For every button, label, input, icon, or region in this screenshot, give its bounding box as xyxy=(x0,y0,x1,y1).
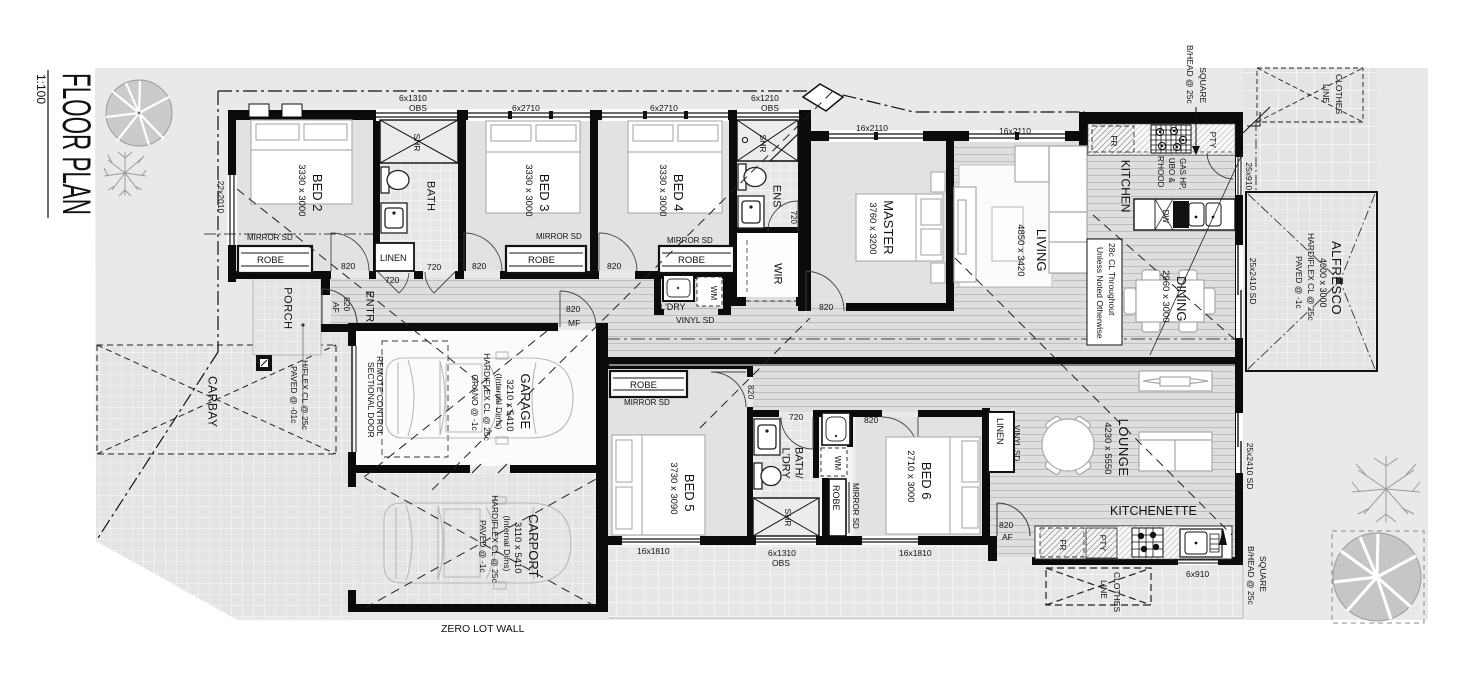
svg-text:BED 5: BED 5 xyxy=(682,474,697,512)
svg-text:820: 820 xyxy=(342,297,352,311)
svg-text:B/HEAD @ 25c: B/HEAD @ 25c xyxy=(1185,45,1195,104)
svg-text:25x2410 SD: 25x2410 SD xyxy=(1248,258,1258,305)
svg-text:25x910: 25x910 xyxy=(1244,162,1254,190)
svg-text:6x1210: 6x1210 xyxy=(751,93,779,103)
svg-text:FR: FR xyxy=(1109,135,1119,146)
svg-text:BATH/: BATH/ xyxy=(792,447,804,480)
svg-text:MASTER: MASTER xyxy=(881,200,896,254)
svg-text:820: 820 xyxy=(341,261,355,271)
svg-text:ZERO LOT WALL: ZERO LOT WALL xyxy=(441,623,525,635)
svg-text:LINEN: LINEN xyxy=(380,253,407,263)
svg-text:28c CL Throughout: 28c CL Throughout xyxy=(1107,243,1117,316)
svg-text:ROBE: ROBE xyxy=(678,255,705,266)
svg-text:720: 720 xyxy=(789,211,798,225)
svg-text:(Internal Dims): (Internal Dims) xyxy=(494,374,504,430)
svg-text:SQUARE: SQUARE xyxy=(1258,556,1268,592)
svg-text:MIRROR SD: MIRROR SD xyxy=(536,232,582,241)
svg-text:(Internal Dims): (Internal Dims) xyxy=(502,516,512,572)
svg-text:KITCHENETTE: KITCHENETTE xyxy=(1110,504,1197,518)
svg-text:FLOOR PLAN: FLOOR PLAN xyxy=(54,73,98,215)
svg-text:SHR: SHR xyxy=(758,135,768,153)
svg-text:BED 2: BED 2 xyxy=(310,174,325,212)
svg-text:Unless Noted Otherwise: Unless Noted Otherwise xyxy=(1095,247,1105,339)
svg-text:3330 x 3000: 3330 x 3000 xyxy=(523,164,534,216)
svg-text:3330 x 3000: 3330 x 3000 xyxy=(296,164,307,216)
svg-text:BED 6: BED 6 xyxy=(919,462,934,500)
svg-text:AF: AF xyxy=(331,302,341,313)
svg-text:LIVING: LIVING xyxy=(1034,229,1049,272)
svg-text:FR: FR xyxy=(1058,539,1068,550)
svg-text:3210 x 5410: 3210 x 5410 xyxy=(504,379,515,431)
svg-text:BATH: BATH xyxy=(424,181,436,212)
svg-text:720: 720 xyxy=(789,412,803,422)
svg-text:SECTIONAL DOOR: SECTIONAL DOOR xyxy=(366,362,376,438)
svg-text:16x2110: 16x2110 xyxy=(856,123,888,133)
svg-text:16x2110: 16x2110 xyxy=(999,126,1031,136)
svg-text:KITCHEN: KITCHEN xyxy=(1119,160,1133,213)
svg-text:PTY: PTY xyxy=(1208,132,1218,149)
svg-text:LINE: LINE xyxy=(1099,580,1109,599)
svg-text:AF: AF xyxy=(1002,532,1013,542)
svg-text:820: 820 xyxy=(819,302,833,312)
svg-text:720: 720 xyxy=(427,262,441,272)
svg-text:WM: WM xyxy=(833,456,842,471)
svg-text:PAVED @ -01c: PAVED @ -01c xyxy=(289,366,299,424)
svg-text:GARAGE: GARAGE xyxy=(518,374,533,430)
svg-text:720: 720 xyxy=(385,275,399,285)
svg-text:3730 x 3090: 3730 x 3090 xyxy=(668,462,679,514)
svg-text:820: 820 xyxy=(607,261,621,271)
svg-text:1:100: 1:100 xyxy=(34,74,48,104)
svg-text:H/FLEX CL @ 25c: H/FLEX CL @ 25c xyxy=(300,360,310,430)
svg-text:PTY: PTY xyxy=(1098,535,1108,552)
svg-text:L'DRY: L'DRY xyxy=(660,302,686,312)
svg-text:OBS: OBS xyxy=(409,103,427,113)
svg-text:HARDIFLEX CL @ 25c: HARDIFLEX CL @ 25c xyxy=(482,353,492,441)
svg-text:CARPORT: CARPORT xyxy=(526,514,541,577)
svg-text:SHR: SHR xyxy=(783,509,793,527)
svg-text:SHR: SHR xyxy=(412,134,422,152)
svg-text:3760 x 3200: 3760 x 3200 xyxy=(867,202,878,254)
svg-text:6x910: 6x910 xyxy=(1186,569,1209,579)
svg-text:25x2410 SD: 25x2410 SD xyxy=(1245,443,1255,490)
svg-text:ROBE: ROBE xyxy=(630,380,657,391)
svg-text:ENS: ENS xyxy=(770,185,782,208)
svg-text:BED 3: BED 3 xyxy=(537,174,552,212)
svg-text:UBO &: UBO & xyxy=(1167,158,1176,184)
svg-text:OBS: OBS xyxy=(772,558,790,568)
svg-text:6x1310: 6x1310 xyxy=(399,93,427,103)
svg-text:PAVED @ -1c: PAVED @ -1c xyxy=(478,520,488,573)
svg-text:2960 x 3000: 2960 x 3000 xyxy=(1160,270,1171,322)
svg-text:OBS: OBS xyxy=(761,103,779,113)
svg-text:ROBE: ROBE xyxy=(257,255,284,266)
svg-text:LINE: LINE xyxy=(1321,84,1331,103)
svg-text:16x1810: 16x1810 xyxy=(899,548,932,558)
svg-text:16x1810: 16x1810 xyxy=(637,546,670,556)
svg-text:CLOTHES: CLOTHES xyxy=(1334,74,1344,114)
svg-text:MIRROR SD: MIRROR SD xyxy=(851,483,860,529)
svg-text:MIRROR SD: MIRROR SD xyxy=(624,398,670,407)
svg-text:WIR: WIR xyxy=(771,263,783,284)
svg-text:6x2710: 6x2710 xyxy=(512,103,540,113)
svg-text:SQUARE: SQUARE xyxy=(1198,67,1208,103)
svg-text:ROBE: ROBE xyxy=(831,485,841,511)
svg-text:R'HOOD: R'HOOD xyxy=(1156,156,1165,188)
svg-text:3110 x 5410: 3110 x 5410 xyxy=(512,522,523,574)
svg-text:820: 820 xyxy=(472,261,486,271)
svg-text:ROBE: ROBE xyxy=(528,255,555,266)
svg-text:MF: MF xyxy=(568,318,580,328)
svg-text:820: 820 xyxy=(999,520,1013,530)
svg-text:GRANO @ -1c: GRANO @ -1c xyxy=(470,374,480,431)
svg-text:GAS HP,: GAS HP, xyxy=(1178,158,1187,189)
svg-text:820: 820 xyxy=(566,304,580,314)
svg-text:LINEN: LINEN xyxy=(995,418,1005,445)
svg-text:BED 4: BED 4 xyxy=(671,174,686,212)
svg-text:820: 820 xyxy=(746,385,756,399)
svg-text:HARDIFLEX CL @ 25c: HARDIFLEX CL @ 25c xyxy=(490,495,500,583)
svg-text:22x2010: 22x2010 xyxy=(216,181,226,214)
svg-text:3330 x 3000: 3330 x 3000 xyxy=(657,164,668,216)
svg-text:WM: WM xyxy=(709,286,718,301)
svg-text:LOUNGE: LOUNGE xyxy=(1116,419,1131,477)
svg-text:6x1310: 6x1310 xyxy=(768,548,796,558)
svg-text:820: 820 xyxy=(864,415,878,425)
svg-text:PORCH: PORCH xyxy=(281,287,293,329)
svg-text:ALFRESCO: ALFRESCO xyxy=(1329,241,1344,315)
svg-text:DW: DW xyxy=(1161,210,1170,224)
svg-text:MIRROR SD: MIRROR SD xyxy=(667,236,713,245)
svg-text:PAVED @ -1c: PAVED @ -1c xyxy=(1294,256,1304,309)
svg-text:B/HEAD @ 25c: B/HEAD @ 25c xyxy=(1246,546,1256,605)
svg-text:6x2710: 6x2710 xyxy=(650,103,678,113)
svg-text:L'DRY: L'DRY xyxy=(779,448,791,480)
svg-text:CLOTHES: CLOTHES xyxy=(1112,572,1122,612)
svg-text:HARDIFLEX CL @ 25c: HARDIFLEX CL @ 25c xyxy=(1306,233,1316,321)
svg-text:4000 x 3000: 4000 x 3000 xyxy=(1318,258,1328,308)
svg-text:VINYL SD: VINYL SD xyxy=(1012,425,1021,461)
svg-text:CARBAY: CARBAY xyxy=(206,376,220,427)
svg-text:4230 x 5550: 4230 x 5550 xyxy=(1102,422,1113,474)
svg-text:2710 x 3000: 2710 x 3000 xyxy=(905,450,916,502)
svg-text:4850 x 3420: 4850 x 3420 xyxy=(1015,224,1026,276)
svg-text:VINYL SD: VINYL SD xyxy=(676,315,714,325)
